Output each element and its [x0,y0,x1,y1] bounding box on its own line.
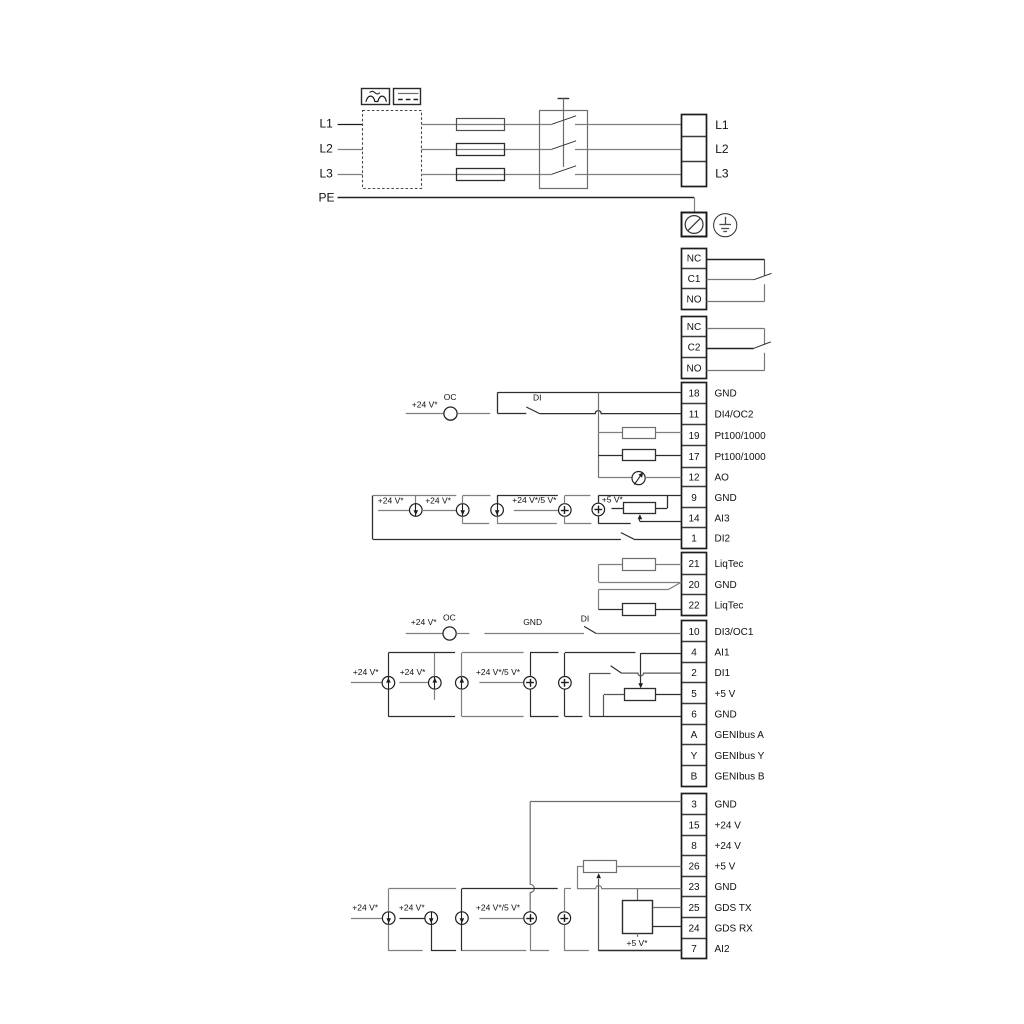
svg-text:GND: GND [715,800,737,811]
svg-text:+5 V: +5 V [715,689,736,700]
svg-text:14: 14 [688,513,700,524]
svg-text:NO: NO [687,363,702,374]
svg-text:19: 19 [688,431,700,442]
svg-text:21: 21 [688,559,700,570]
svg-text:6: 6 [691,709,697,720]
svg-text:+5 V: +5 V [715,862,736,873]
svg-text:+24 V*: +24 V* [400,667,426,677]
svg-text:+24 V*: +24 V* [411,617,437,627]
svg-text:5: 5 [691,689,697,700]
svg-text:17: 17 [688,452,700,463]
svg-text:L2: L2 [715,142,729,156]
svg-text:24: 24 [688,924,700,935]
svg-text:18: 18 [688,388,700,399]
svg-text:11: 11 [689,410,700,421]
svg-text:4: 4 [691,647,697,658]
svg-text:GND: GND [715,709,737,720]
svg-text:2: 2 [691,668,697,679]
svg-text:NO: NO [687,295,702,306]
svg-text:OC: OC [443,613,456,623]
svg-text:+24 V: +24 V [715,821,742,832]
svg-text:Y: Y [691,751,698,762]
svg-text:26: 26 [688,862,700,873]
svg-text:3: 3 [691,800,697,811]
svg-text:L2: L2 [320,141,334,155]
svg-text:DI: DI [533,393,542,403]
svg-text:+24 V*: +24 V* [378,495,404,505]
svg-text:GENIbus A: GENIbus A [715,730,765,741]
svg-text:DI4/OC2: DI4/OC2 [715,410,754,421]
svg-text:+24 V*/5 V*: +24 V*/5 V* [476,903,521,913]
svg-text:L3: L3 [320,166,334,180]
svg-text:AI2: AI2 [715,944,730,955]
svg-text:Pt100/1000: Pt100/1000 [715,452,767,463]
svg-text:+24 V*/5 V*: +24 V*/5 V* [476,667,521,677]
svg-text:8: 8 [691,841,697,852]
svg-text:GDS TX: GDS TX [715,903,752,914]
svg-text:23: 23 [688,882,700,893]
svg-text:GND: GND [715,580,737,591]
svg-text:12: 12 [688,473,700,484]
svg-text:PE: PE [319,191,335,205]
svg-text:GDS RX: GDS RX [715,924,754,935]
svg-text:+24 V*: +24 V* [352,903,378,913]
svg-text:+24 V*: +24 V* [425,495,451,505]
svg-text:+24 V*: +24 V* [399,903,425,913]
svg-text:DI: DI [581,614,590,624]
svg-text:L1: L1 [320,116,334,130]
svg-text:NC: NC [687,322,701,333]
svg-text:+5 V*: +5 V* [602,495,624,505]
svg-text:AI3: AI3 [715,513,730,524]
svg-text:GENIbus B: GENIbus B [715,772,765,783]
svg-text:DI2: DI2 [715,533,731,544]
svg-text:GND: GND [715,882,737,893]
svg-text:+24 V*: +24 V* [412,399,438,409]
svg-text:9: 9 [691,493,697,504]
svg-text:+5 V*: +5 V* [627,938,649,948]
svg-text:GND: GND [715,493,737,504]
svg-text:B: B [691,772,698,783]
svg-text:GND: GND [715,388,737,399]
svg-text:AI1: AI1 [715,647,730,658]
svg-text:1: 1 [691,533,697,544]
svg-text:20: 20 [688,580,700,591]
svg-text:OC: OC [444,392,457,402]
svg-text:AO: AO [715,473,730,484]
svg-text:C2: C2 [688,343,701,354]
svg-text:7: 7 [691,944,697,955]
svg-text:+24 V*: +24 V* [353,667,379,677]
svg-text:10: 10 [688,627,700,638]
svg-text:A: A [691,730,698,741]
svg-text:DI3/OC1: DI3/OC1 [715,627,754,638]
svg-text:25: 25 [688,903,700,914]
svg-text:NC: NC [687,254,701,265]
svg-text:L3: L3 [715,167,729,181]
svg-text:GND: GND [523,617,542,627]
svg-text:+24 V: +24 V [715,841,742,852]
svg-text:22: 22 [688,601,700,612]
svg-text:+24 V*/5 V*: +24 V*/5 V* [512,495,557,505]
svg-text:LiqTec: LiqTec [715,559,744,570]
svg-text:LiqTec: LiqTec [715,601,744,612]
svg-text:C1: C1 [688,274,701,285]
svg-text:15: 15 [688,821,700,832]
svg-text:DI1: DI1 [715,668,731,679]
svg-text:Pt100/1000: Pt100/1000 [715,431,767,442]
svg-text:L1: L1 [715,118,729,132]
svg-text:GENIbus Y: GENIbus Y [715,751,765,762]
